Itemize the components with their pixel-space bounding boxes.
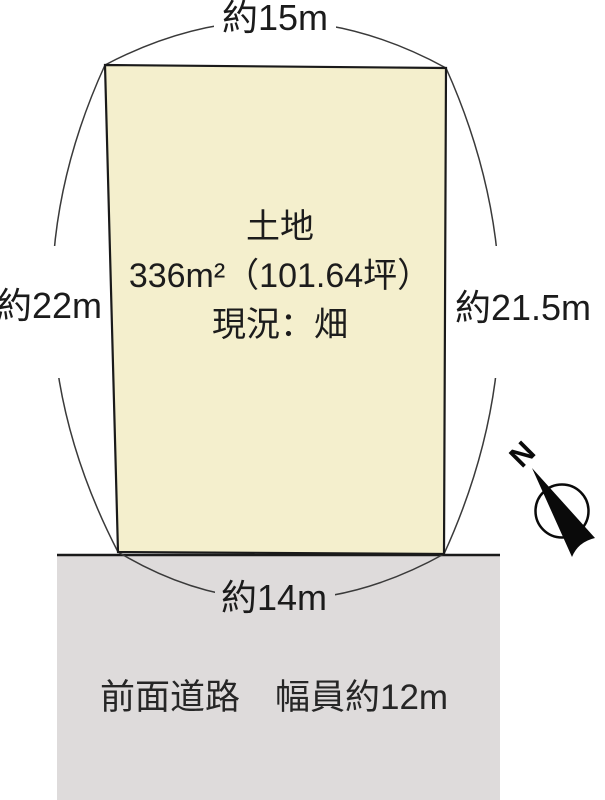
parcel-area: 336m²（101.64坪） xyxy=(110,252,450,301)
compass xyxy=(532,468,595,557)
parcel-status: 現況：畑 xyxy=(110,301,450,350)
land-plot-diagram: 約15m 約22m 約21.5m 約14m 土地 336m²（101.64坪） … xyxy=(0,0,605,800)
road-label: 前面道路 幅員約12m xyxy=(100,676,500,720)
parcel-info: 土地 336m²（101.64坪） 現況：畑 xyxy=(110,203,450,350)
dimension-label-left: 約22m xyxy=(0,284,104,328)
dimension-label-top: 約15m xyxy=(214,0,336,40)
dimension-label-right: 約21.5m xyxy=(448,286,598,330)
dimension-label-bottom: 約14m xyxy=(213,576,335,620)
parcel-title: 土地 xyxy=(110,203,450,252)
